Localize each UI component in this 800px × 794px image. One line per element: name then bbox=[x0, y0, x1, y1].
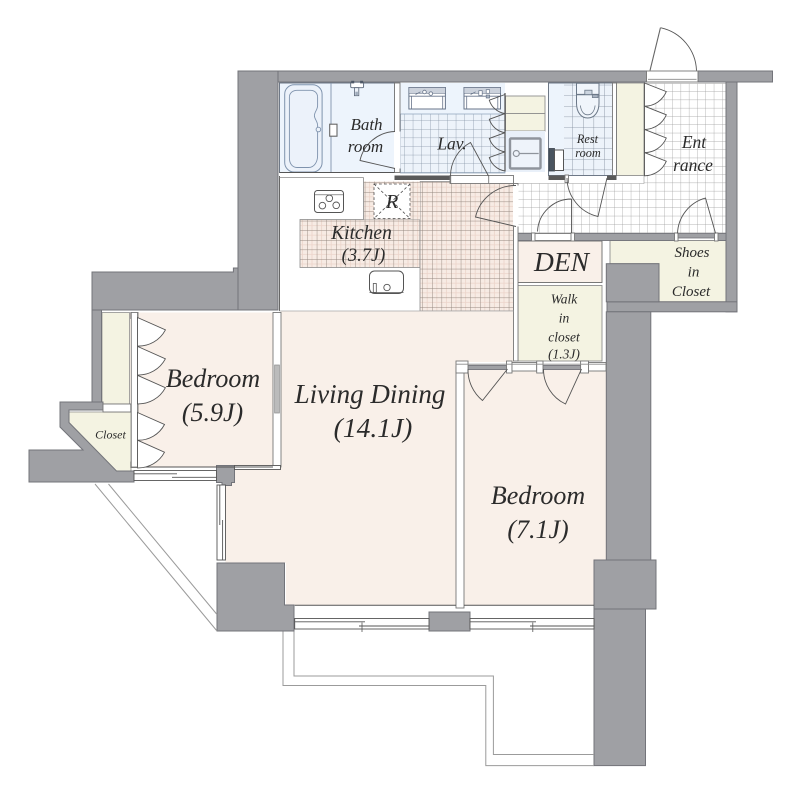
svg-text:(7.1J): (7.1J) bbox=[507, 515, 568, 544]
svg-text:room: room bbox=[575, 146, 601, 160]
svg-text:(1.3J): (1.3J) bbox=[548, 347, 580, 362]
svg-text:closet: closet bbox=[548, 329, 581, 344]
svg-text:(5.9J): (5.9J) bbox=[182, 398, 243, 427]
svg-text:Bedroom: Bedroom bbox=[166, 364, 260, 393]
svg-text:DEN: DEN bbox=[533, 246, 591, 277]
svg-text:Bath: Bath bbox=[350, 115, 382, 134]
svg-text:in: in bbox=[688, 265, 700, 281]
svg-text:(3.7J): (3.7J) bbox=[342, 246, 386, 266]
svg-text:Walk: Walk bbox=[551, 292, 579, 307]
svg-text:in: in bbox=[559, 311, 570, 326]
svg-text:Shoes: Shoes bbox=[675, 245, 710, 261]
svg-text:(14.1J): (14.1J) bbox=[334, 412, 413, 443]
svg-text:Rest: Rest bbox=[576, 132, 599, 146]
svg-text:R: R bbox=[385, 191, 399, 213]
svg-text:room: room bbox=[348, 137, 383, 156]
svg-text:Bedroom: Bedroom bbox=[491, 481, 585, 510]
svg-text:Lav.: Lav. bbox=[436, 134, 466, 154]
svg-text:Living Dining: Living Dining bbox=[294, 379, 446, 409]
svg-text:Closet: Closet bbox=[672, 284, 711, 300]
svg-text:Closet: Closet bbox=[95, 428, 126, 442]
svg-text:Ent: Ent bbox=[681, 132, 707, 152]
svg-text:rance: rance bbox=[673, 155, 713, 175]
svg-text:Kitchen: Kitchen bbox=[330, 223, 392, 244]
